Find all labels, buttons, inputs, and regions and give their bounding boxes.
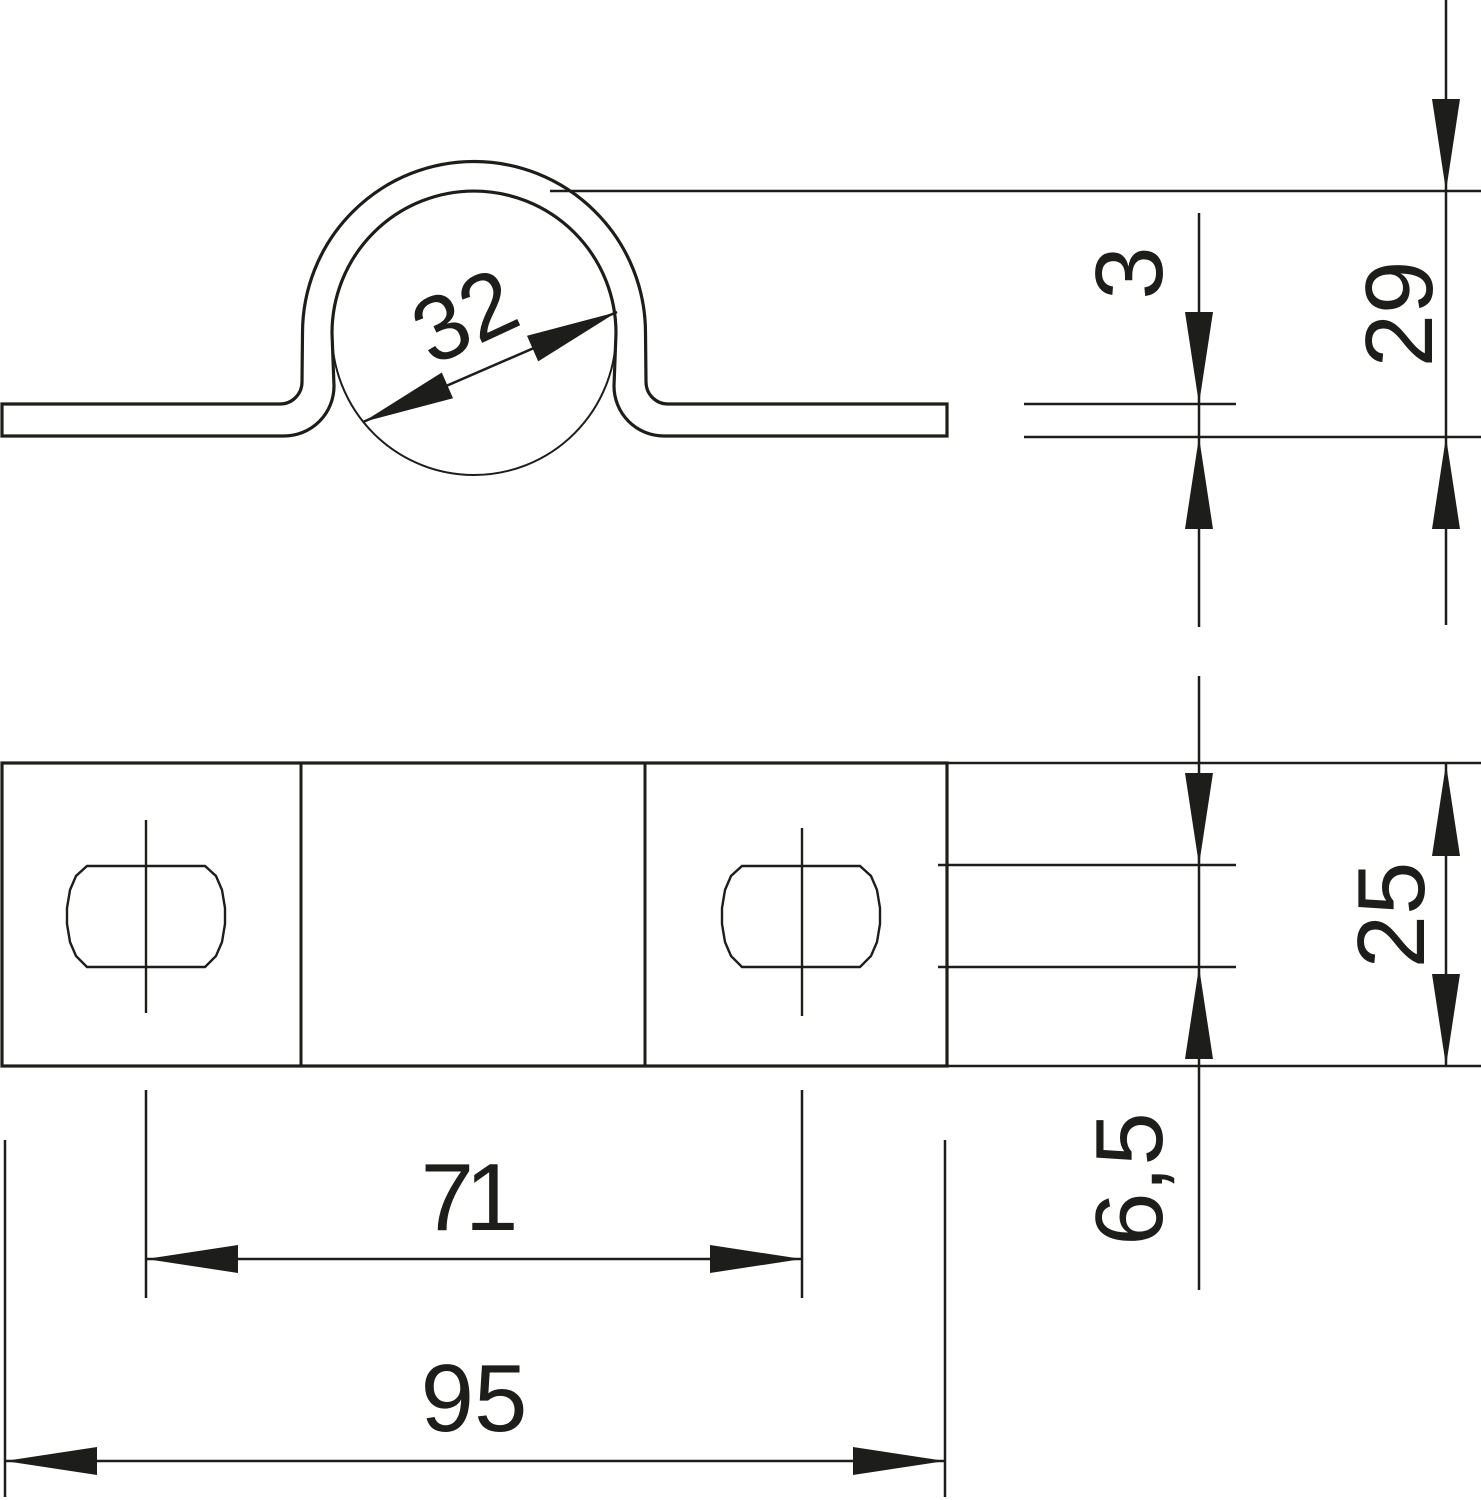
svg-text:25: 25 <box>1338 862 1445 969</box>
svg-text:71: 71 <box>421 1144 514 1251</box>
svg-text:3: 3 <box>1076 246 1183 299</box>
svg-text:6,5: 6,5 <box>1076 1112 1183 1245</box>
svg-text:95: 95 <box>421 1345 528 1452</box>
svg-text:29: 29 <box>1346 261 1453 368</box>
